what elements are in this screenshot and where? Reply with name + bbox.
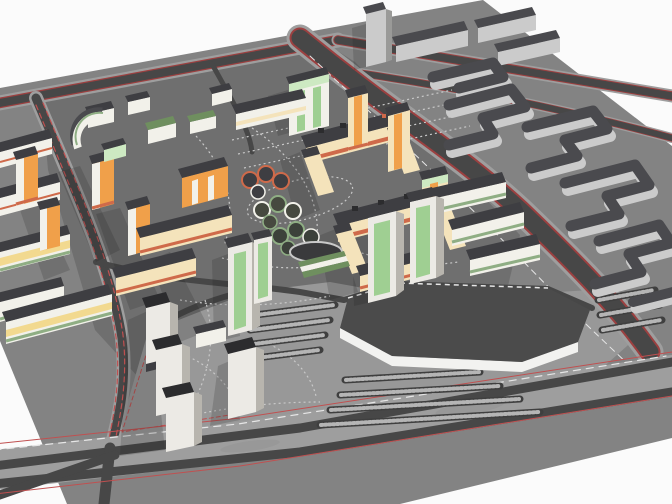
white-green-tower-2	[406, 187, 444, 284]
highrise-4	[224, 337, 264, 419]
model-viewport[interactable]	[0, 0, 672, 504]
city-model-render	[0, 0, 672, 504]
white-green-tower-1	[364, 202, 404, 303]
white-green-tower-4	[251, 229, 272, 304]
